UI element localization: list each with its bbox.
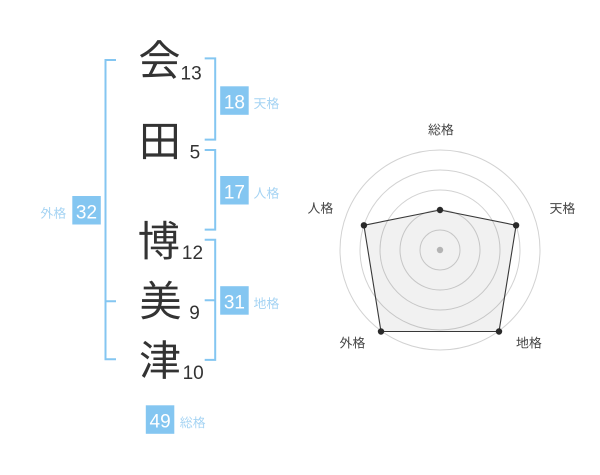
svg-text:31: 31 — [224, 293, 245, 314]
svg-text:13: 13 — [181, 64, 202, 85]
svg-text:10: 10 — [183, 363, 204, 384]
svg-text:5: 5 — [190, 143, 201, 164]
svg-text:9: 9 — [189, 303, 200, 324]
svg-text:12: 12 — [182, 243, 203, 264]
svg-text:17: 17 — [224, 182, 245, 203]
svg-text:32: 32 — [76, 202, 97, 223]
svg-text:49: 49 — [150, 412, 171, 433]
svg-text:18: 18 — [224, 93, 245, 114]
